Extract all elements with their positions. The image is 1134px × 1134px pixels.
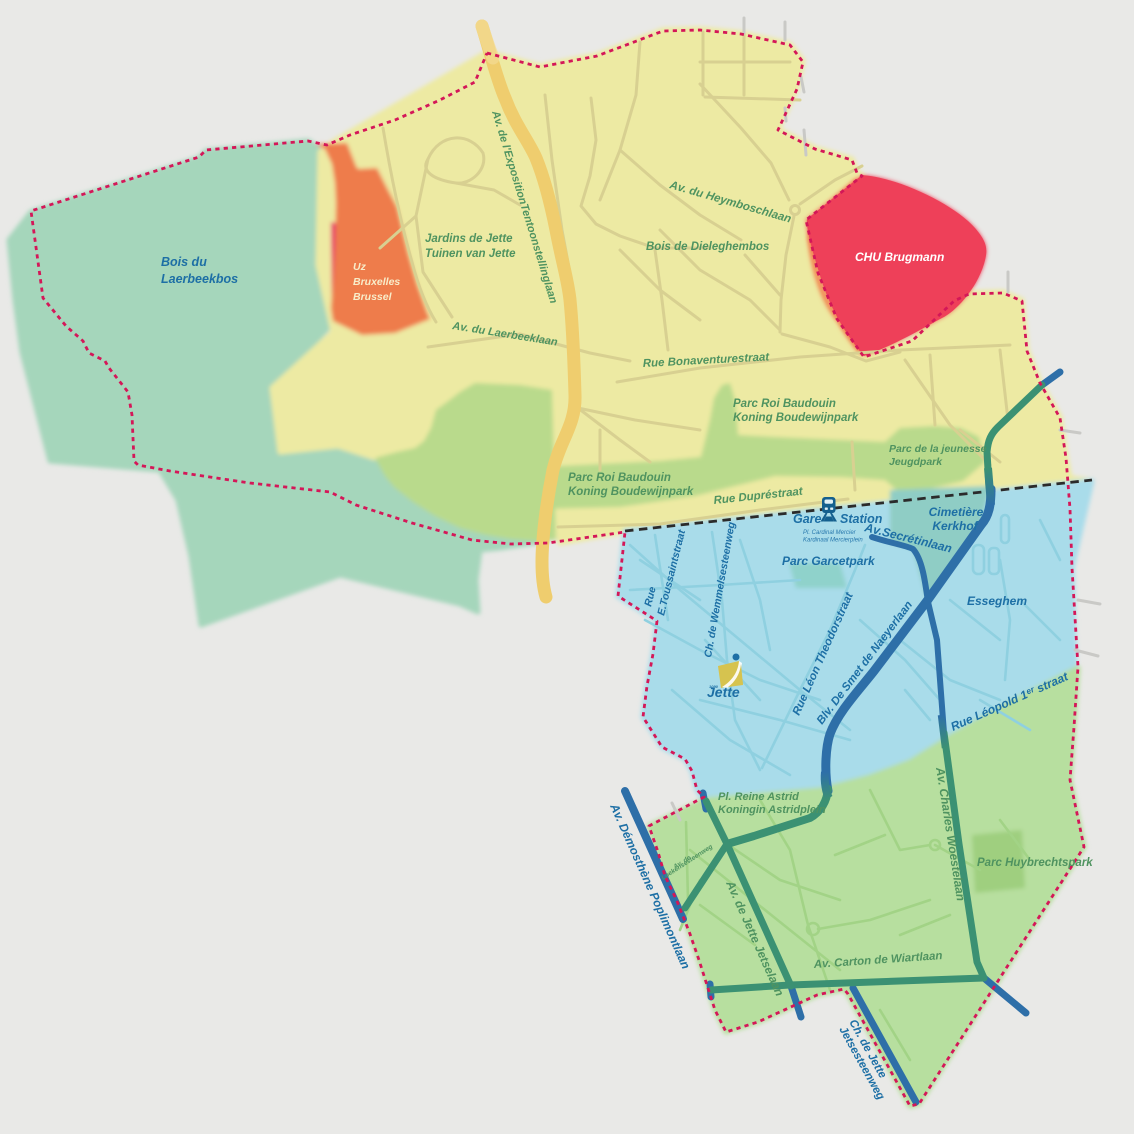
svg-text:Parc Garcetpark: Parc Garcetpark [782,554,876,568]
svg-text:Koningin Astridplein: Koningin Astridplein [718,804,826,816]
svg-text:Jeugdpark: Jeugdpark [889,456,943,468]
svg-text:Pl. Cardinal Mercier: Pl. Cardinal Mercier [803,530,857,536]
svg-text:Parc Roi Baudouin: Parc Roi Baudouin [568,472,671,484]
svg-text:Pl. Reine Astrid: Pl. Reine Astrid [718,791,799,803]
svg-text:Kerkhof: Kerkhof [932,519,978,533]
svg-text:Tuinen van Jette: Tuinen van Jette [425,248,516,260]
svg-text:Uz: Uz [353,261,367,273]
svg-text:Bois du: Bois du [161,255,207,269]
svg-text:Kardinaal Mercierplein: Kardinaal Mercierplein [803,538,863,544]
svg-text:Brussel: Brussel [353,291,393,303]
svg-text:Parc Huybrechtspark: Parc Huybrechtspark [977,857,1093,869]
svg-text:CHU Brugmann: CHU Brugmann [855,250,944,264]
svg-text:Cimetière: Cimetière [929,505,984,519]
svg-text:Jette: Jette [707,684,740,700]
svg-text:Bois de Dieleghembos: Bois de Dieleghembos [646,241,769,253]
svg-text:Parc Roi Baudouin: Parc Roi Baudouin [733,398,836,410]
svg-text:Parc de la jeunesse: Parc de la jeunesse [889,443,987,455]
svg-text:Laerbeekbos: Laerbeekbos [161,272,238,286]
svg-text:Bruxelles: Bruxelles [353,276,400,288]
svg-text:Jardins de Jette: Jardins de Jette [425,233,513,245]
svg-text:Gare: Gare [793,512,822,526]
svg-text:Koning Boudewijnpark: Koning Boudewijnpark [733,412,859,424]
svg-text:Esseghem: Esseghem [967,594,1027,608]
svg-text:Koning Boudewijnpark: Koning Boudewijnpark [568,486,694,498]
